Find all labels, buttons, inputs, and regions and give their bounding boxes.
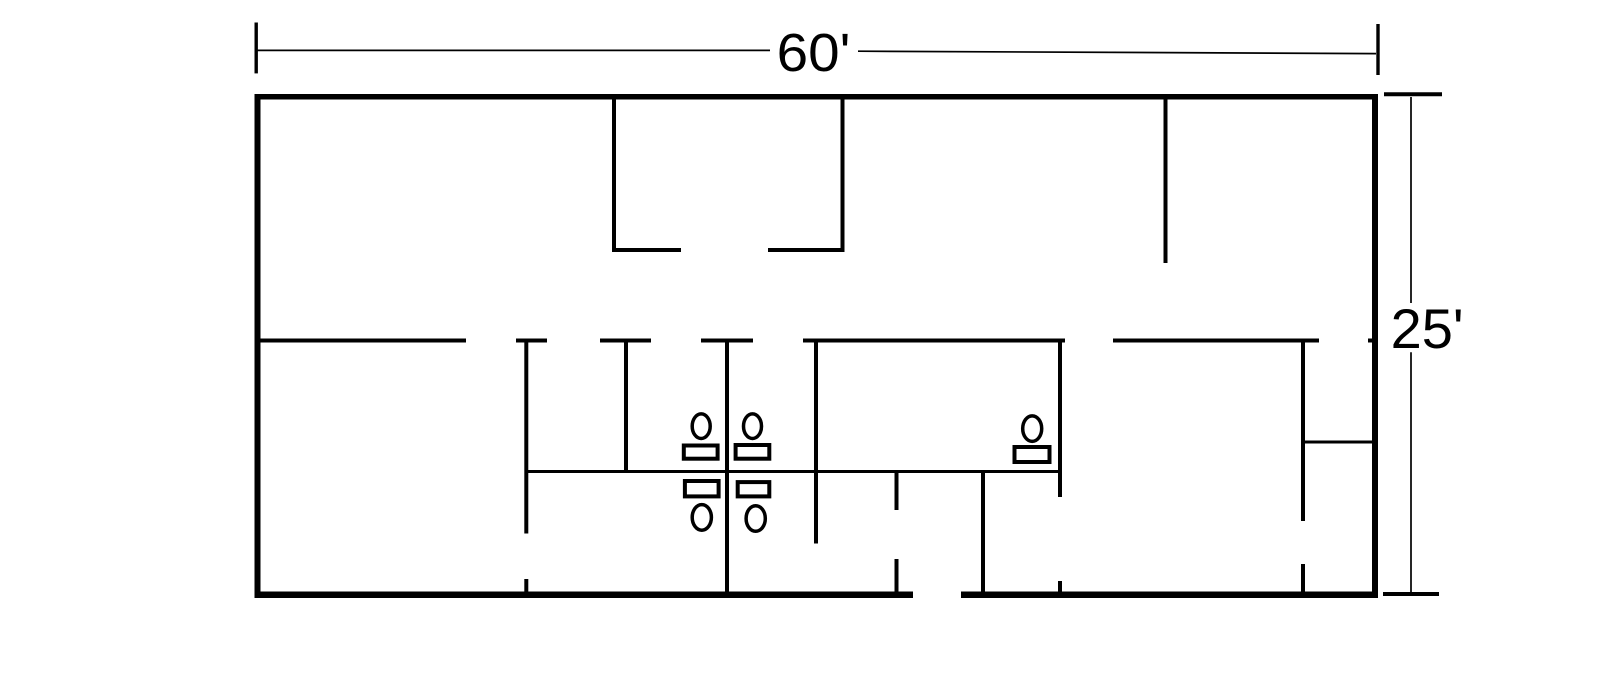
svg-text:60': 60' [777,23,851,83]
svg-text:25': 25' [1391,297,1464,360]
